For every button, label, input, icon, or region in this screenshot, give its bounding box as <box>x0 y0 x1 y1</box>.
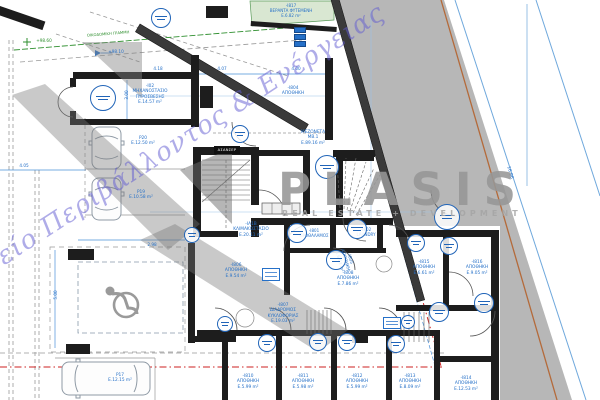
dim-label-300: 3.00 <box>124 90 129 99</box>
room-label-i815: -Ι815 ΑΠΟΘΗΚΗ Ε.6.61 m² <box>413 260 435 276</box>
door-stamp-icon <box>231 125 249 143</box>
door-stamp-icon <box>387 335 405 353</box>
room-label-i810: -Ι810 ΑΠΟΘΗΚΗ Ε.5.99 m² <box>237 374 259 390</box>
door-stamp-icon <box>90 85 116 111</box>
elevation-label-blue: +98.10 <box>108 49 124 54</box>
room-label-stairwell: -ΙΑ1Β ΚΛΙΜΑΚΟΣΤΑΣΙΟ Ε.20.11 m² <box>233 222 269 238</box>
plasis-watermark-subtitle: REAL ESTATE + DEVELOPMENT <box>282 209 522 218</box>
room-label-fire-pump: -Ι02 ΜΗΧΑΝΟΣΤΑΣΙΟ ΠΥΡΟΣΒΕΣΗΣ Ε.14.57 m² <box>132 84 167 105</box>
handicap-stall-outline <box>78 262 183 333</box>
note-box-icon <box>262 268 280 281</box>
elevator-label: ΑΣΑΝΣΕΡ <box>214 146 240 154</box>
door-stamp-icon <box>326 250 346 270</box>
dim-label-500: 5.00 <box>53 290 58 299</box>
survey-line-short <box>536 0 600 196</box>
dim-label-418: 4.18 <box>153 66 162 71</box>
door-stamp-icon <box>217 316 233 332</box>
floor-drain <box>236 309 254 327</box>
door-stamp-icon <box>287 223 307 243</box>
door-stamp-icon <box>309 333 327 351</box>
floor-drain <box>376 256 392 272</box>
room-label-veranda: -Ι817 ΒΕΡΑΝΤΑ ΦΥΤΕΜΕΝΗ Ε.6.82 m² <box>270 3 312 18</box>
door-stamp-icon <box>338 333 356 351</box>
door-stamp-icon <box>258 334 276 352</box>
parking-zone-outline <box>50 247 185 352</box>
room-label-i812: -Ι812 ΑΠΟΘΗΚΗ Ε.5.99 m² <box>346 374 368 390</box>
door-stamp-icon <box>474 293 494 313</box>
parking-label-p19: P19 Ε.10.58 m² <box>129 190 153 201</box>
door-stamp-icon <box>407 234 425 252</box>
room-label-i806: -Ι806 ΑΠΟΘΗΚΗ Ε.9.54 m² <box>225 263 247 279</box>
dim-label-298: 2.98 <box>147 242 156 247</box>
wheelchair-icon <box>106 287 139 318</box>
parking-label-p17: P17 Ε.12.15 m² <box>108 373 132 384</box>
room-label-i816: -Ι816 ΑΠΟΘΗΚΗ Ε.9.05 m² <box>466 260 488 276</box>
door-stamp-icon <box>151 8 171 28</box>
room-label-mezoneta: ΜΕΖΟΝΕΤΑ ΜΒ.1 Ε.89.16 m² <box>301 130 325 146</box>
elevation-label-green: +98.60 <box>36 38 52 43</box>
note-box-icon <box>383 317 401 329</box>
car-top-view <box>62 359 150 398</box>
room-label-i807: -Ι807 ΔΙΑΔΡΟΜΟΣ ΚΥΚΛΟΦΟΡΙΑΣ Ε.19.03 m² <box>268 303 299 324</box>
dim-label-407: 4.07 <box>217 66 226 71</box>
dim-label-405: 4.05 <box>19 163 28 168</box>
room-label-i813: -Ι813 ΑΠΟΘΗΚΗ Ε.8.09 m² <box>399 374 421 390</box>
door-stamp-icon <box>440 237 458 255</box>
room-label-i811: -Ι811 ΑΠΟΘΗΚΗ Ε.5.98 m² <box>292 374 314 390</box>
door-stamp-icon <box>184 227 200 243</box>
room-label-i808: -Ι808 ΑΠΟΘΗΚΗ Ε.7.86 m² <box>337 271 359 287</box>
floor-plan-canvas: -Ι02 ΜΗΧΑΝΟΣΤΑΣΙΟ ΠΥΡΟΣΒΕΣΗΣ Ε.14.57 m²-… <box>0 0 600 400</box>
door-stamp-icon <box>401 315 415 329</box>
door-stamp-icon <box>347 219 367 239</box>
door-stamp-icon <box>429 302 449 322</box>
room-label-i814: -Ι814 ΑΠΟΘΗΚΗ Ε.12.53 m² <box>454 376 478 392</box>
